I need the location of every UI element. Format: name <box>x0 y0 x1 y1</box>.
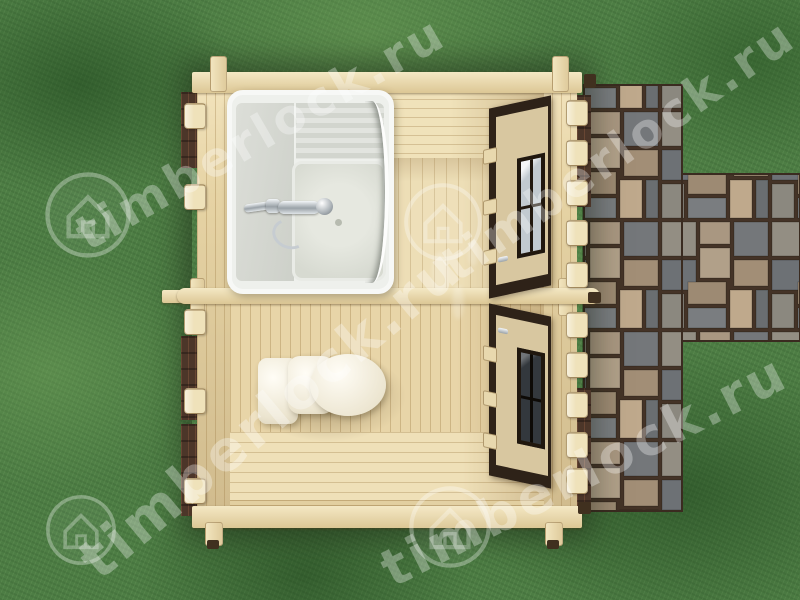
wet-mark <box>432 252 448 292</box>
beam-end <box>588 292 601 303</box>
log-end <box>566 220 588 246</box>
log-end <box>184 309 206 335</box>
log-end <box>566 140 588 166</box>
faucet-spout <box>278 201 320 214</box>
faucet-spout-cap <box>316 198 333 215</box>
shower-room-door <box>489 95 551 298</box>
log-end <box>184 478 206 504</box>
door-window <box>517 347 545 449</box>
shower-drain <box>335 219 342 226</box>
beam-end <box>584 74 596 88</box>
render-canvas: timberlock.ru timberlock.ru timberlock.r… <box>0 0 800 600</box>
log-end <box>566 100 588 126</box>
log-end <box>184 103 206 129</box>
cabin-bottom-wall-beam <box>192 506 582 528</box>
shower-cabin <box>227 90 394 294</box>
log-end <box>566 432 588 458</box>
log-end <box>566 180 588 206</box>
door-window <box>517 153 545 259</box>
door-handle <box>498 256 508 263</box>
beam-end <box>578 502 591 514</box>
log-end <box>566 312 588 338</box>
corner-foot-tip <box>207 540 219 549</box>
door-hinge <box>483 147 497 165</box>
log-end <box>566 468 588 494</box>
toilet-bowl-lid <box>310 354 386 416</box>
log-end <box>566 352 588 378</box>
door-hinge <box>483 198 497 216</box>
log-end <box>184 388 206 414</box>
corner-post <box>210 56 227 92</box>
door-hinge <box>483 432 497 450</box>
door-hinge <box>483 248 497 266</box>
toilet-room-door <box>489 303 551 488</box>
wet-mark <box>452 285 464 319</box>
wet-mark <box>468 240 478 266</box>
corner-foot-tip <box>547 540 559 549</box>
log-end <box>184 184 206 210</box>
door-hinge <box>483 390 497 408</box>
corner-post <box>552 56 569 92</box>
door-hinge <box>483 345 497 363</box>
log-end <box>566 262 588 288</box>
door-handle <box>498 327 508 334</box>
shower-side-panel <box>236 103 294 281</box>
log-end <box>566 392 588 418</box>
